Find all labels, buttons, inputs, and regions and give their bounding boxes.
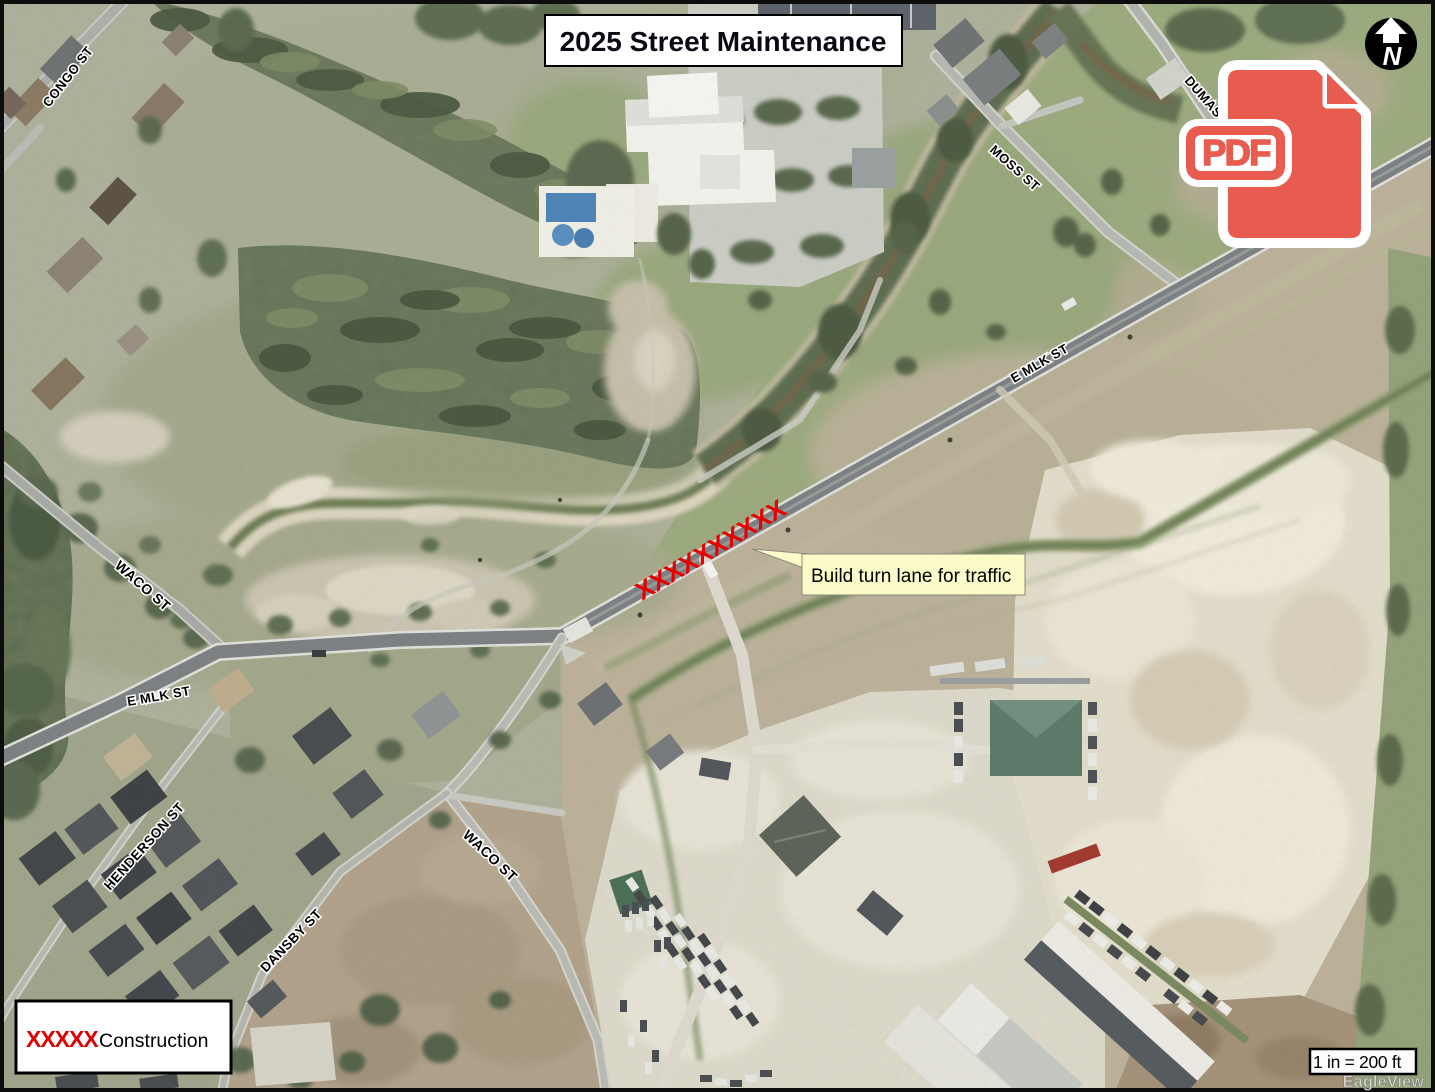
svg-text:1 in = 200 ft: 1 in = 200 ft [1313, 1052, 1401, 1072]
svg-text:Build turn lane for traffic: Build turn lane for traffic [811, 566, 1011, 587]
svg-text:PDF: PDF [1202, 132, 1270, 173]
svg-text:2025 Street Maintenance: 2025 Street Maintenance [560, 26, 887, 57]
svg-text:N: N [1383, 41, 1403, 71]
svg-text:XXXXX: XXXXX [26, 1026, 99, 1052]
svg-text:Construction: Construction [99, 1030, 208, 1052]
svg-text:EagleView: EagleView [1343, 1073, 1424, 1091]
